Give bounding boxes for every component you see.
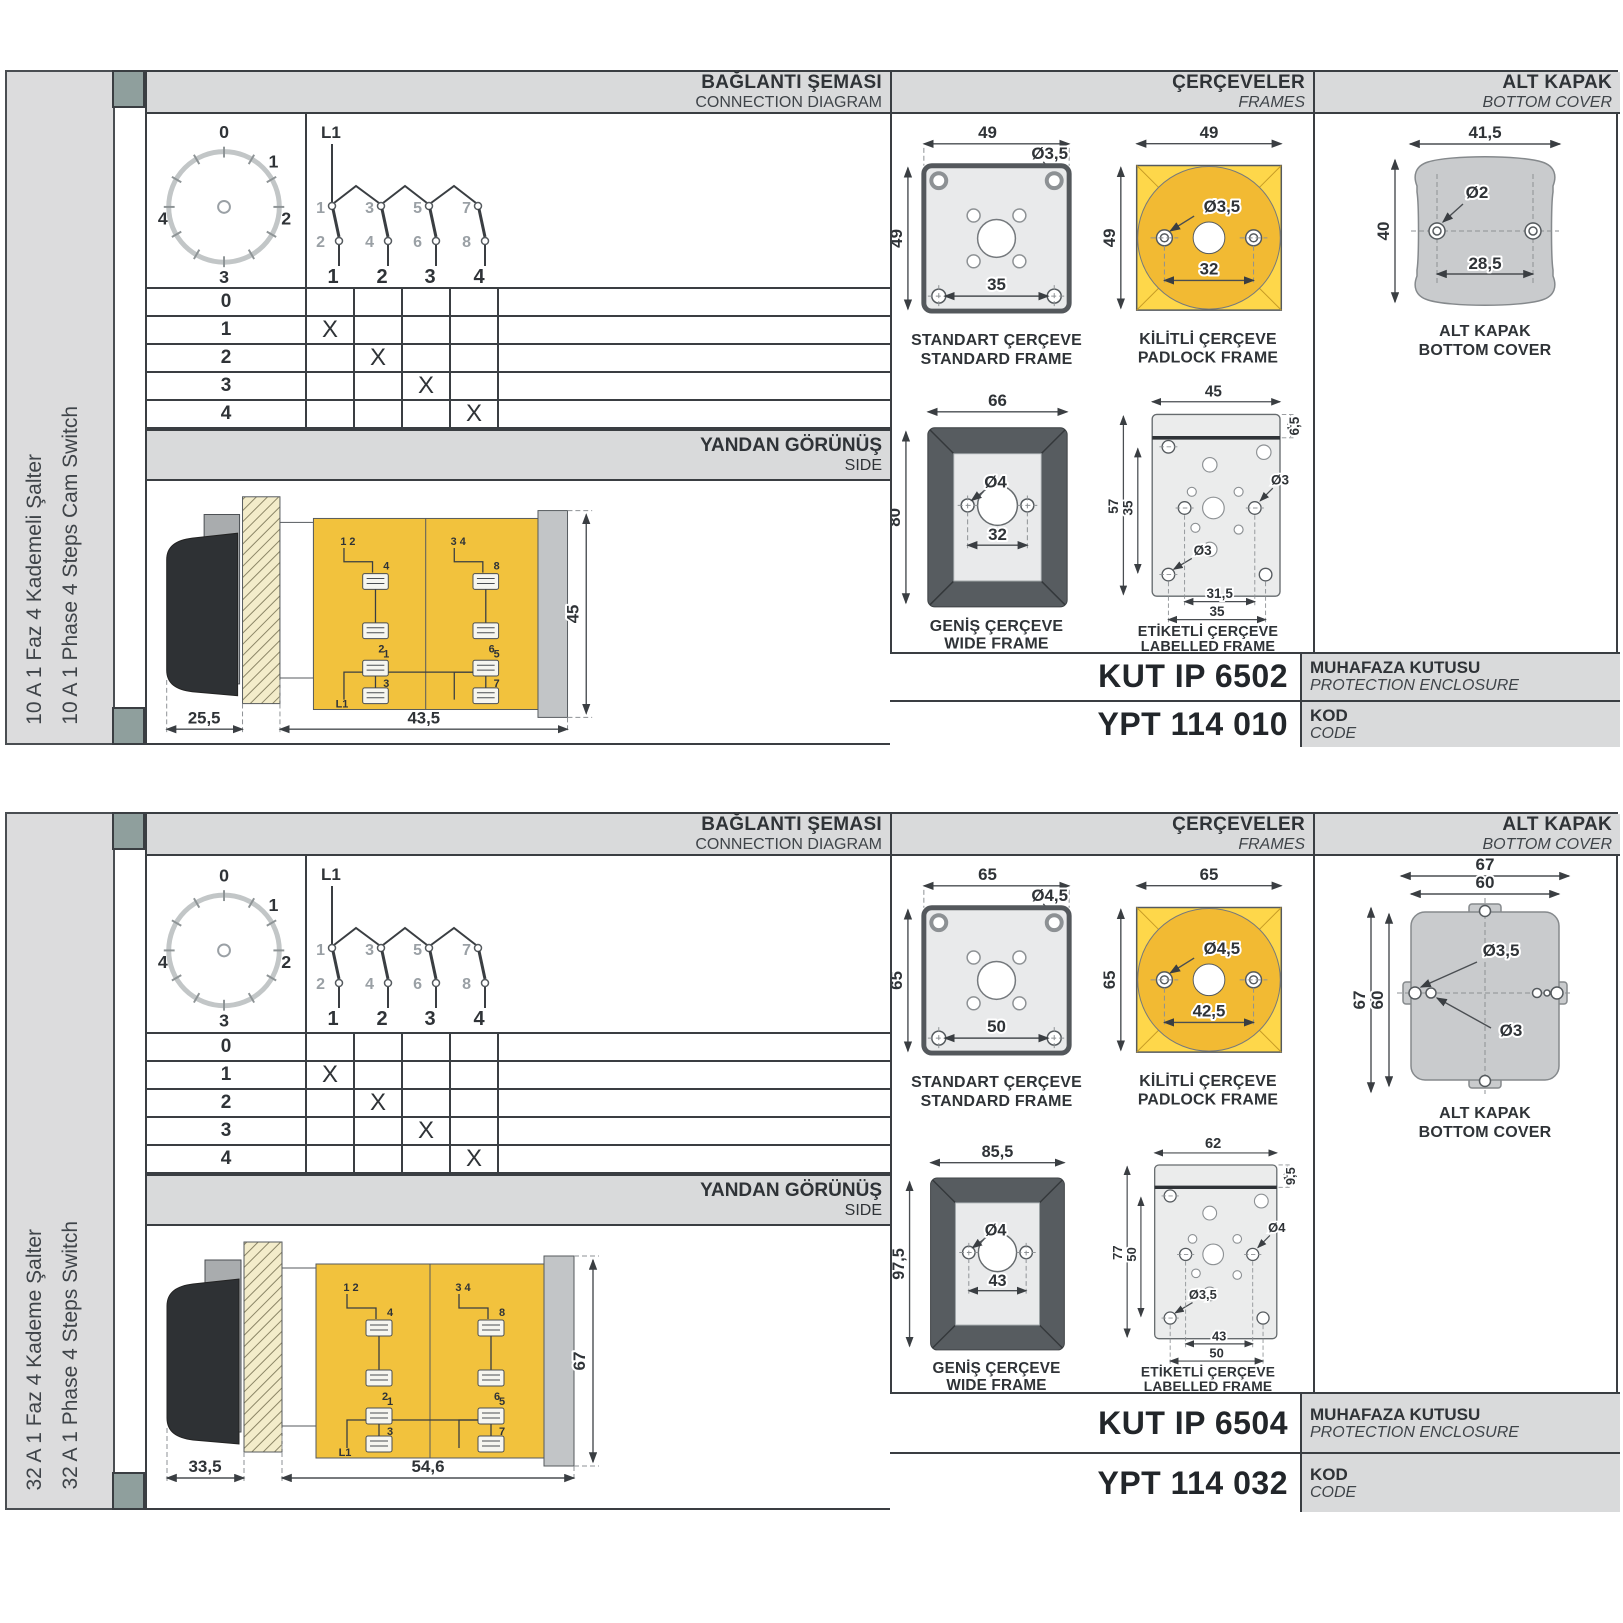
labelled-frame-svg: 62 9,5 77 50 <box>1103 1134 1313 1392</box>
svg-text:KİLİTLİ ÇERÇEVE: KİLİTLİ ÇERÇEVE <box>1139 1072 1277 1090</box>
enclosure-label: MUHAFAZA KUTUSU PROTECTION ENCLOSURE <box>1300 654 1620 700</box>
header-tr: BAĞLANTI ŞEMASI <box>701 73 882 94</box>
switch-handle <box>167 1279 239 1444</box>
svg-text:65: 65 <box>978 865 997 884</box>
filler-cell <box>499 401 890 427</box>
product-title-en: 10 A 1 Phase 4 Steps Cam Switch <box>59 406 83 725</box>
standard-frame-drawing: 65 Ø4,5 65 50 STANDART ÇERÇEVE STANDA <box>892 856 1102 1134</box>
table-row: 3X <box>147 1118 890 1146</box>
position-cell: 2 <box>147 1090 307 1116</box>
corner-marker <box>112 70 145 108</box>
table-row: 4X <box>147 401 890 429</box>
svg-text:5: 5 <box>413 942 422 959</box>
mark-cell: X <box>307 317 355 343</box>
enclosure-label: MUHAFAZA KUTUSU PROTECTION ENCLOSURE <box>1300 1394 1620 1452</box>
svg-text:STANDART ÇERÇEVE: STANDART ÇERÇEVE <box>911 332 1082 349</box>
svg-text:2: 2 <box>316 976 325 993</box>
table-row: 0 <box>147 1034 890 1062</box>
svg-text:1: 1 <box>327 266 338 287</box>
dial-center <box>218 944 230 956</box>
svg-text:1: 1 <box>268 895 278 915</box>
padlock-frame-drawing: 49 49 Ø3,5 32 <box>1103 114 1313 382</box>
enclosure-code: KUT IP 6504 <box>890 1394 1300 1452</box>
position-cell: 2 <box>147 345 307 371</box>
product-code: YPT 114 032 <box>890 1454 1300 1512</box>
svg-text:ETİKETLİ ÇERÇEVE: ETİKETLİ ÇERÇEVE <box>1138 623 1279 640</box>
svg-text:GENİŞ ÇERÇEVE: GENİŞ ÇERÇEVE <box>930 617 1063 635</box>
position-cell: 1 <box>147 1062 307 1088</box>
svg-text:80: 80 <box>892 508 904 527</box>
wide-frame-svg: 85,5 97,5 Ø4 43 GENİŞ Ç <box>892 1134 1102 1392</box>
mark-cell <box>403 1034 451 1060</box>
svg-text:3: 3 <box>387 1426 393 1438</box>
svg-text:9,5: 9,5 <box>1283 1167 1298 1185</box>
circuit-wires <box>332 886 476 945</box>
mark-cell <box>403 317 451 343</box>
svg-text:Ø4: Ø4 <box>1268 1220 1286 1235</box>
svg-text:8: 8 <box>462 976 471 993</box>
column-numbers: 1 2 3 4 <box>327 266 485 287</box>
datasheet-panel: BAĞLANTI ŞEMASI CONNECTION DIAGRAM ÇERÇE… <box>145 812 1618 1510</box>
header-tr: ÇERÇEVELER <box>1172 815 1305 836</box>
table-row: 2X <box>147 1090 890 1118</box>
position-cell: 1 <box>147 317 307 343</box>
svg-text:60: 60 <box>1368 991 1387 1010</box>
mark-cell <box>403 345 451 371</box>
svg-text:5: 5 <box>499 1396 505 1408</box>
contact-circuit-diagram: L1 12 34 56 <box>307 114 890 287</box>
svg-text:KİLİTLİ ÇERÇEVE: KİLİTLİ ÇERÇEVE <box>1139 330 1277 348</box>
wide-frame-drawing: 85,5 97,5 Ø4 43 GENİŞ Ç <box>892 1134 1102 1392</box>
svg-text:Ø3,5: Ø3,5 <box>1031 144 1068 163</box>
svg-text:49: 49 <box>1200 123 1219 142</box>
dial-ring <box>169 895 280 1006</box>
enclosure-code-row: KUT IP 6504 MUHAFAZA KUTUSU PROTECTION E… <box>890 1392 1620 1452</box>
position-cell: 0 <box>147 289 307 315</box>
code-label: KOD CODE <box>1300 1454 1620 1512</box>
side-view-header: YANDAN GÖRÜNÜŞ SIDE <box>147 1174 890 1226</box>
svg-text:6: 6 <box>413 976 422 993</box>
svg-text:STANDARD FRAME: STANDARD FRAME <box>921 351 1073 368</box>
svg-text:1: 1 <box>387 1396 393 1408</box>
mark-cell: X <box>403 1118 451 1144</box>
dial-svg: 0 1 2 3 4 <box>147 114 305 287</box>
mark-cell: X <box>355 1090 403 1116</box>
label-tr: KOD <box>1310 706 1620 725</box>
svg-text:Ø4: Ø4 <box>984 472 1007 491</box>
svg-text:2: 2 <box>316 234 325 251</box>
side-view-svg: 1 2 3 4 4 2 8 6 1 3 5 7 <box>147 483 890 743</box>
shaft-hole <box>978 961 1016 999</box>
svg-text:43,5: 43,5 <box>407 708 440 727</box>
svg-text:77: 77 <box>1110 1246 1125 1260</box>
svg-text:5: 5 <box>413 200 422 217</box>
svg-text:3: 3 <box>365 942 374 959</box>
svg-text:1: 1 <box>316 942 325 959</box>
svg-text:45: 45 <box>1205 383 1222 400</box>
svg-text:50: 50 <box>1209 1346 1223 1361</box>
svg-text:43: 43 <box>988 1272 1006 1290</box>
rotary-dial-diagram: 0 1 2 3 4 <box>147 114 307 287</box>
svg-text:Ø3,5: Ø3,5 <box>1204 197 1240 216</box>
svg-text:7: 7 <box>499 1426 505 1438</box>
product-code-row: YPT 114 032 KOD CODE <box>890 1452 1620 1512</box>
enclosure-code-row: KUT IP 6502 MUHAFAZA KUTUSU PROTECTION E… <box>890 652 1620 700</box>
svg-text:35: 35 <box>1209 604 1225 619</box>
mark-cell <box>355 1034 403 1060</box>
mark-cell <box>355 1062 403 1088</box>
svg-text:Ø3,5: Ø3,5 <box>1483 941 1520 960</box>
bottom-cover-drawing: 41,5 40 Ø2 28,5 ALT KAPAK BOTTOM COVER <box>1315 114 1618 652</box>
svg-text:3 4: 3 4 <box>451 536 466 548</box>
mark-cell <box>451 345 499 371</box>
header-en: CONNECTION DIAGRAM <box>695 94 882 111</box>
header-en: SIDE <box>845 457 882 474</box>
mark-cell <box>403 401 451 427</box>
dial-svg: 0 1 2 3 4 <box>147 856 305 1032</box>
bottom-cover-svg: 67 60 67 60 <box>1315 856 1618 1392</box>
svg-text:Ø4,5: Ø4,5 <box>1204 939 1240 958</box>
mark-cell: X <box>307 1062 355 1088</box>
side-view-header: YANDAN GÖRÜNÜŞ SIDE <box>147 429 890 481</box>
svg-text:4: 4 <box>473 1008 485 1030</box>
svg-text:40: 40 <box>1374 222 1393 241</box>
switch-handle <box>167 533 238 696</box>
frames-header: ÇERÇEVELER FRAMES <box>890 72 1313 114</box>
label-en: CODE <box>1310 725 1620 743</box>
svg-text:LABELLED FRAME: LABELLED FRAME <box>1144 1379 1272 1392</box>
table-row: 3X <box>147 373 890 401</box>
corner-marker <box>112 812 145 850</box>
svg-text:41,5: 41,5 <box>1468 123 1501 142</box>
svg-text:PADLOCK FRAME: PADLOCK FRAME <box>1138 350 1278 367</box>
mark-cell <box>355 401 403 427</box>
table-row: 4X <box>147 1146 890 1174</box>
filler-cell <box>499 317 890 343</box>
svg-text:1: 1 <box>316 200 325 217</box>
labelled-frame-drawing: 62 9,5 77 50 <box>1103 1134 1313 1392</box>
spacer <box>282 1268 316 1426</box>
filler-cell <box>499 1090 890 1116</box>
svg-text:Ø3: Ø3 <box>1194 543 1213 558</box>
column-numbers: 1 2 3 4 <box>327 1008 485 1030</box>
svg-text:1: 1 <box>268 151 278 171</box>
svg-text:32: 32 <box>1200 259 1219 278</box>
switching-table: 0 1X 2X 3X 4X <box>147 287 890 429</box>
svg-text:28,5: 28,5 <box>1468 254 1501 273</box>
product-row-10a: 10 A 1 Faz 4 Kademeli Şalter 10 A 1 Phas… <box>0 70 1623 745</box>
svg-text:2: 2 <box>376 266 387 287</box>
mark-cell <box>307 373 355 399</box>
label-en: PROTECTION ENCLOSURE <box>1310 677 1620 695</box>
mark-cell <box>451 1034 499 1060</box>
svg-text:2: 2 <box>281 209 291 229</box>
datasheet-panel: BAĞLANTI ŞEMASI CONNECTION DIAGRAM ÇERÇE… <box>145 70 1618 745</box>
svg-text:6: 6 <box>413 234 422 251</box>
circuit-svg: L1 12 34 56 <box>307 114 890 287</box>
svg-text:62: 62 <box>1205 1136 1221 1152</box>
svg-text:1 2: 1 2 <box>340 536 355 548</box>
svg-text:4: 4 <box>387 1307 394 1319</box>
product-code: YPT 114 010 <box>890 702 1300 748</box>
svg-text:L1: L1 <box>336 699 349 711</box>
bottom-cover-drawing: 67 60 67 60 <box>1315 856 1618 1392</box>
mark-cell <box>307 1034 355 1060</box>
svg-text:8: 8 <box>462 234 471 251</box>
svg-text:Ø3: Ø3 <box>1271 473 1290 488</box>
rotary-dial-diagram: 0 1 2 3 4 <box>147 856 307 1032</box>
label-en: CODE <box>1310 1484 1620 1502</box>
filler-cell <box>499 1062 890 1088</box>
svg-text:ETİKETLİ ÇERÇEVE: ETİKETLİ ÇERÇEVE <box>1141 1364 1275 1380</box>
mark-cell <box>451 289 499 315</box>
svg-text:1: 1 <box>327 1008 338 1030</box>
svg-text:4: 4 <box>158 952 168 972</box>
circuit-wires <box>332 144 476 203</box>
connection-diagram-header: BAĞLANTI ŞEMASI CONNECTION DIAGRAM <box>147 814 890 856</box>
mark-cell <box>307 345 355 371</box>
table-row: 1X <box>147 317 890 345</box>
dial-center <box>218 201 230 213</box>
filler-cell <box>499 1146 890 1172</box>
svg-text:32: 32 <box>988 525 1007 544</box>
position-cell: 3 <box>147 1118 307 1144</box>
spacer <box>280 522 313 678</box>
wide-frame-drawing: 66 80 Ø4 32 GENİŞ ÇERÇE <box>892 382 1102 652</box>
svg-text:0: 0 <box>219 122 229 142</box>
mark-cell <box>451 373 499 399</box>
svg-text:BOTTOM COVER: BOTTOM COVER <box>1419 342 1552 359</box>
padlock-frame-svg: 65 65 Ø4,5 42,5 <box>1103 856 1313 1134</box>
corner-marker <box>112 1472 145 1510</box>
svg-text:42,5: 42,5 <box>1193 1001 1226 1020</box>
label-tr: MUHAFAZA KUTUSU <box>1310 1405 1620 1424</box>
svg-text:WIDE FRAME: WIDE FRAME <box>946 1377 1046 1392</box>
svg-text:60: 60 <box>1476 873 1495 892</box>
header-tr: YANDAN GÖRÜNÜŞ <box>700 1181 882 1202</box>
header-tr: ALT KAPAK <box>1502 73 1612 94</box>
svg-text:3: 3 <box>365 200 374 217</box>
svg-text:65: 65 <box>1200 865 1219 884</box>
header-en: CONNECTION DIAGRAM <box>695 836 882 853</box>
svg-text:45: 45 <box>563 605 582 624</box>
svg-text:49: 49 <box>892 229 906 248</box>
svg-text:4: 4 <box>365 976 374 993</box>
svg-text:35: 35 <box>1120 500 1135 516</box>
svg-text:0: 0 <box>219 865 229 885</box>
mark-cell <box>355 1146 403 1172</box>
header-tr: ÇERÇEVELER <box>1172 73 1305 94</box>
svg-text:65: 65 <box>1103 970 1119 989</box>
svg-text:ALT KAPAK: ALT KAPAK <box>1439 323 1531 340</box>
labelled-frame-svg: 45 6,5 57 35 <box>1103 382 1313 652</box>
mark-cell <box>307 1146 355 1172</box>
svg-text:57: 57 <box>1106 499 1121 514</box>
svg-text:PADLOCK FRAME: PADLOCK FRAME <box>1138 1092 1278 1109</box>
mark-cell <box>403 1090 451 1116</box>
phase-label: L1 <box>321 865 341 884</box>
mark-cell: X <box>451 1146 499 1172</box>
mark-cell <box>307 289 355 315</box>
standard-frame-svg: 49 Ø3,5 49 35 STANDART ÇERÇEVE STANDA <box>892 114 1102 382</box>
svg-text:1: 1 <box>383 648 389 660</box>
svg-text:50: 50 <box>987 1017 1006 1036</box>
mark-cell <box>307 1090 355 1116</box>
mark-cell <box>403 1146 451 1172</box>
side-view-drawing: 1 2 3 4 4 2 8 6 1 3 5 7 <box>147 1228 890 1508</box>
position-cell: 0 <box>147 1034 307 1060</box>
mark-cell <box>451 1090 499 1116</box>
standard-frame-svg: 65 Ø4,5 65 50 STANDART ÇERÇEVE STANDA <box>892 856 1102 1134</box>
mark-cell: X <box>355 345 403 371</box>
corner-marker <box>112 707 145 745</box>
dial-ring <box>169 152 280 263</box>
svg-text:L1: L1 <box>339 1447 352 1459</box>
svg-text:STANDARD FRAME: STANDARD FRAME <box>921 1093 1073 1110</box>
svg-text:3: 3 <box>219 267 229 287</box>
svg-text:LABELLED FRAME: LABELLED FRAME <box>1141 639 1276 652</box>
svg-text:7: 7 <box>462 200 471 217</box>
product-title-panel: 10 A 1 Faz 4 Kademeli Şalter 10 A 1 Phas… <box>5 70 115 745</box>
svg-text:49: 49 <box>978 123 997 142</box>
mark-cell <box>403 1062 451 1088</box>
product-title-panel: 32 A 1 Faz 4 Kademe Şalter 32 A 1 Phase … <box>5 812 115 1510</box>
svg-text:8: 8 <box>499 1307 505 1319</box>
svg-text:3: 3 <box>383 678 389 690</box>
header-tr: ALT KAPAK <box>1502 815 1612 836</box>
header-en: FRAMES <box>1238 836 1305 853</box>
svg-text:4: 4 <box>158 209 168 229</box>
svg-text:67: 67 <box>1350 991 1369 1010</box>
filler-cell <box>499 289 890 315</box>
svg-text:Ø4,5: Ø4,5 <box>1031 886 1068 905</box>
svg-text:4: 4 <box>383 561 389 573</box>
svg-text:49: 49 <box>1103 228 1119 247</box>
svg-text:50: 50 <box>1124 1247 1139 1261</box>
svg-text:85,5: 85,5 <box>982 1143 1014 1161</box>
product-row-32a: 32 A 1 Faz 4 Kademe Şalter 32 A 1 Phase … <box>0 812 1623 1510</box>
svg-text:97,5: 97,5 <box>892 1248 908 1280</box>
filler-cell <box>499 345 890 371</box>
svg-text:WIDE FRAME: WIDE FRAME <box>944 636 1048 652</box>
header-en: BOTTOM COVER <box>1483 836 1613 853</box>
svg-text:43: 43 <box>1212 1328 1226 1343</box>
product-title-tr: 10 A 1 Faz 4 Kademeli Şalter <box>23 454 47 725</box>
mark-cell <box>403 289 451 315</box>
header-en: BOTTOM COVER <box>1483 94 1613 111</box>
product-code-row: YPT 114 010 KOD CODE <box>890 700 1620 748</box>
mark-cell <box>307 1118 355 1144</box>
switching-table: 0 1X 2X 3X 4X <box>147 1032 890 1174</box>
product-title-en: 32 A 1 Phase 4 Steps Switch <box>59 1221 83 1490</box>
svg-text:Ø2: Ø2 <box>1466 183 1489 202</box>
svg-text:2: 2 <box>281 952 291 972</box>
svg-text:25,5: 25,5 <box>188 708 221 727</box>
bottom-cover-header: ALT KAPAK BOTTOM COVER <box>1313 814 1620 856</box>
mounting-panel <box>244 1242 282 1452</box>
svg-text:67: 67 <box>1476 856 1495 874</box>
labelled-frame-drawing: 45 6,5 57 35 <box>1103 382 1313 652</box>
svg-text:3 4: 3 4 <box>455 1282 471 1294</box>
mark-cell: X <box>403 373 451 399</box>
svg-text:3: 3 <box>424 1008 435 1030</box>
padlock-frame-drawing: 65 65 Ø4,5 42,5 <box>1103 856 1313 1134</box>
dial-ticks <box>164 147 284 267</box>
mark-cell <box>451 317 499 343</box>
mark-cell <box>451 1118 499 1144</box>
contact-circuit-diagram: L1 12 34 56 <box>307 856 890 1032</box>
svg-text:67: 67 <box>570 1352 589 1371</box>
table-row: 1X <box>147 1062 890 1090</box>
svg-text:Ø4: Ø4 <box>985 1221 1007 1239</box>
svg-text:4: 4 <box>365 234 374 251</box>
phase-label: L1 <box>321 123 341 142</box>
frames-header: ÇERÇEVELER FRAMES <box>890 814 1313 856</box>
side-view-svg: 1 2 3 4 4 2 8 6 1 3 5 7 <box>147 1228 890 1508</box>
table-row: 2X <box>147 345 890 373</box>
bottom-cover-header: ALT KAPAK BOTTOM COVER <box>1313 72 1620 114</box>
standard-frame-drawing: 49 Ø3,5 49 35 STANDART ÇERÇEVE STANDA <box>892 114 1102 382</box>
shaft-hole <box>978 219 1016 257</box>
svg-text:1 2: 1 2 <box>343 1282 358 1294</box>
label-en: PROTECTION ENCLOSURE <box>1310 1424 1620 1442</box>
svg-text:33,5: 33,5 <box>188 1457 221 1476</box>
svg-text:7: 7 <box>494 678 500 690</box>
product-title-tr: 32 A 1 Faz 4 Kademe Şalter <box>23 1229 47 1491</box>
mark-cell <box>355 317 403 343</box>
dial-ticks <box>164 890 284 1010</box>
svg-text:2: 2 <box>376 1008 387 1030</box>
svg-text:65: 65 <box>892 971 906 990</box>
shaft-hole <box>1193 964 1225 996</box>
header-tr: YANDAN GÖRÜNÜŞ <box>700 436 882 457</box>
svg-text:3: 3 <box>219 1010 229 1030</box>
position-cell: 4 <box>147 1146 307 1172</box>
connection-diagram-header: BAĞLANTI ŞEMASI CONNECTION DIAGRAM <box>147 72 890 114</box>
svg-text:66: 66 <box>988 391 1007 410</box>
wide-frame-svg: 66 80 Ø4 32 GENİŞ ÇERÇE <box>892 382 1102 652</box>
filler-cell <box>499 373 890 399</box>
svg-text:3: 3 <box>424 266 435 287</box>
mark-cell <box>355 373 403 399</box>
mark-cell: X <box>451 401 499 427</box>
enclosure-code: KUT IP 6502 <box>890 654 1300 700</box>
svg-text:STANDART ÇERÇEVE: STANDART ÇERÇEVE <box>911 1074 1082 1091</box>
filler-cell <box>499 1034 890 1060</box>
svg-text:7: 7 <box>462 942 471 959</box>
code-label: KOD CODE <box>1300 702 1620 748</box>
label-tr: MUHAFAZA KUTUSU <box>1310 658 1620 677</box>
svg-text:4: 4 <box>473 266 485 287</box>
svg-text:31,5: 31,5 <box>1207 586 1234 601</box>
header-en: FRAMES <box>1238 94 1305 111</box>
svg-text:Ø3: Ø3 <box>1500 1021 1523 1040</box>
svg-text:35: 35 <box>987 275 1006 294</box>
svg-text:GENİŞ ÇERÇEVE: GENİŞ ÇERÇEVE <box>933 1360 1061 1377</box>
mark-cell <box>307 401 355 427</box>
header-en: SIDE <box>845 1202 882 1219</box>
svg-text:8: 8 <box>494 561 500 573</box>
position-cell: 4 <box>147 401 307 427</box>
position-cell: 3 <box>147 373 307 399</box>
mark-cell <box>355 289 403 315</box>
bottom-cover-svg: 41,5 40 Ø2 28,5 ALT KAPAK BOTTOM COVER <box>1315 114 1618 652</box>
circuit-svg: L1 12 34 56 <box>307 856 890 1032</box>
filler-cell <box>499 1118 890 1144</box>
mark-cell <box>451 1062 499 1088</box>
svg-text:Ø3,5: Ø3,5 <box>1189 1287 1217 1302</box>
svg-text:54,6: 54,6 <box>411 1457 444 1476</box>
